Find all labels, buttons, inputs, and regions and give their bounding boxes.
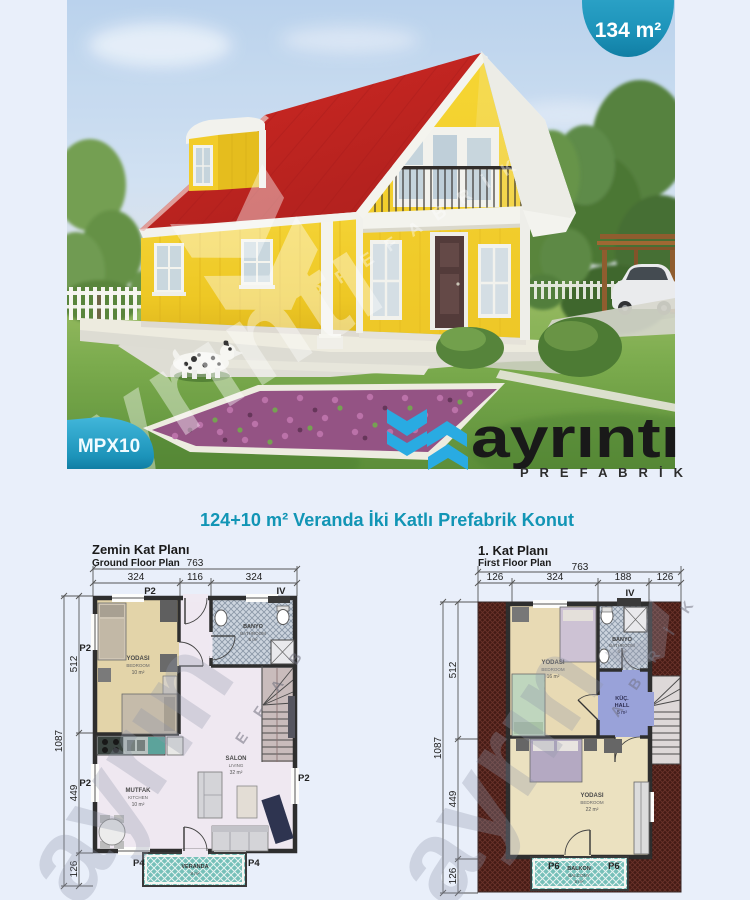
svg-text:763: 763: [572, 562, 589, 573]
svg-text:BATHROOM: BATHROOM: [240, 631, 266, 636]
svg-text:Zemin Kat Planı: Zemin Kat Planı: [92, 542, 190, 557]
svg-text:324: 324: [128, 572, 145, 583]
svg-text:BEDROOM: BEDROOM: [580, 800, 604, 805]
svg-text:Ground Floor Plan: Ground Floor Plan: [92, 558, 180, 569]
svg-text:VERANDA: VERANDA: [181, 864, 208, 870]
svg-text:P R E F A B R İ K: P R E F A B R İ K: [520, 465, 684, 480]
svg-text:126: 126: [487, 572, 504, 583]
svg-text:SALON: SALON: [226, 756, 247, 762]
svg-text:P6: P6: [608, 861, 620, 872]
svg-text:134 m²: 134 m²: [595, 19, 662, 42]
svg-text:126: 126: [657, 572, 674, 583]
svg-text:BANYO: BANYO: [243, 624, 264, 630]
svg-text:P2: P2: [79, 643, 91, 654]
svg-text:116: 116: [187, 572, 203, 583]
svg-text:LIVING: LIVING: [229, 763, 244, 768]
svg-text:MPX10: MPX10: [78, 436, 140, 457]
svg-text:324: 324: [547, 572, 564, 583]
svg-text:ayrıntı: ayrıntı: [471, 406, 680, 470]
svg-text:512: 512: [448, 661, 459, 678]
svg-text:YODASI: YODASI: [580, 793, 603, 799]
svg-text:BALCONY: BALCONY: [568, 873, 590, 878]
svg-text:32 m²: 32 m²: [230, 770, 243, 776]
svg-text:512: 512: [69, 655, 80, 672]
svg-text:IV: IV: [277, 586, 287, 597]
svg-text:P2: P2: [144, 586, 156, 597]
svg-text:124+10 m² Veranda İki Katlı Pr: 124+10 m² Veranda İki Katlı Prefabrik Ko…: [200, 509, 574, 530]
svg-text:22 m²: 22 m²: [586, 807, 599, 813]
svg-text:First Floor Plan: First Floor Plan: [478, 558, 551, 569]
svg-text:IV: IV: [626, 588, 636, 599]
svg-text:1. Kat Planı: 1. Kat Planı: [478, 543, 548, 558]
svg-text:P4: P4: [248, 858, 260, 869]
svg-text:BALKON: BALKON: [567, 866, 591, 872]
svg-text:8 m²: 8 m²: [191, 871, 201, 876]
svg-text:5 m²: 5 m²: [575, 879, 585, 884]
svg-text:P6: P6: [548, 861, 560, 872]
svg-text:P2: P2: [298, 773, 310, 784]
svg-text:324: 324: [246, 572, 263, 583]
svg-text:763: 763: [187, 558, 204, 569]
svg-text:188: 188: [615, 572, 632, 583]
svg-text:5 m²: 5 m²: [249, 637, 259, 642]
